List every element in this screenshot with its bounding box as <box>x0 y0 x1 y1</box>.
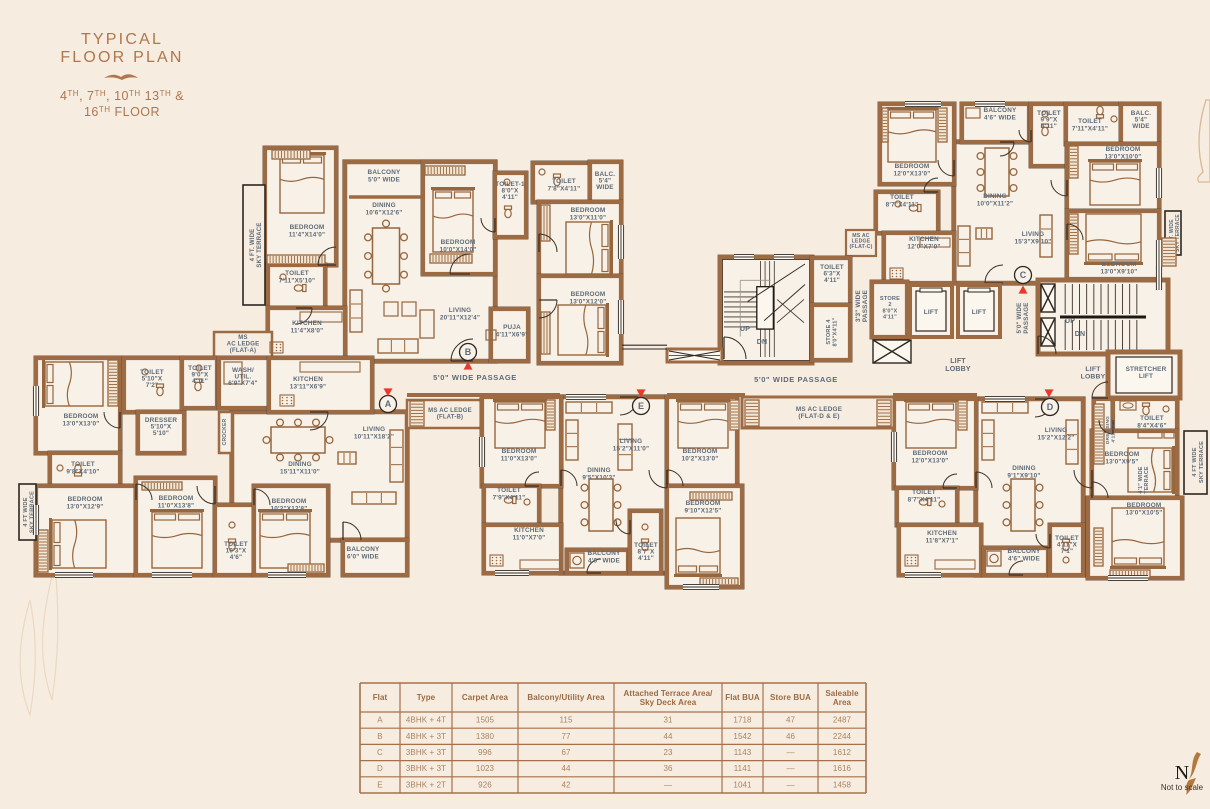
svg-text:31: 31 <box>663 716 673 725</box>
svg-text:CROCKER: CROCKER <box>222 418 228 445</box>
svg-text:E: E <box>638 401 644 411</box>
svg-text:TOILET7'8"X4'11": TOILET7'8"X4'11" <box>548 178 581 193</box>
svg-text:1141: 1141 <box>734 764 752 773</box>
svg-text:A: A <box>377 716 383 725</box>
svg-text:BEDROOM10'2"X13'0": BEDROOM10'2"X13'0" <box>682 448 719 463</box>
svg-text:BEDROOM13'0"X10'5": BEDROOM13'0"X10'5" <box>1126 502 1163 517</box>
svg-text:BEDROOM13'0"X9'5": BEDROOM13'0"X9'5" <box>1105 451 1140 466</box>
svg-text:5'0" WIDE PASSAGE: 5'0" WIDE PASSAGE <box>754 375 838 384</box>
svg-text:DINING9'5"X10'3": DINING9'5"X10'3" <box>582 467 615 482</box>
svg-text:16TH FLOOR: 16TH FLOOR <box>84 105 160 119</box>
svg-text:D: D <box>377 764 383 773</box>
svg-text:3BHK + 3T: 3BHK + 3T <box>406 748 446 757</box>
svg-text:DN: DN <box>757 339 768 346</box>
svg-text:4'1" WIDETERRACE: 4'1" WIDETERRACE <box>1138 466 1150 494</box>
svg-text:BALCONY6'0" WIDE: BALCONY6'0" WIDE <box>347 546 381 561</box>
svg-text:BEDROOM10'0"X14'0": BEDROOM10'0"X14'0" <box>440 239 477 254</box>
svg-text:BALCONY4'6" WIDE: BALCONY4'6" WIDE <box>984 107 1018 122</box>
svg-text:LIFT: LIFT <box>924 309 939 316</box>
svg-text:Not to scale: Not to scale <box>1161 783 1204 792</box>
svg-text:1023: 1023 <box>476 764 495 773</box>
svg-text:BALCONY5'0" WIDE: BALCONY5'0" WIDE <box>368 169 402 184</box>
svg-text:B: B <box>465 347 472 357</box>
svg-text:BEDROOM13'0"X12'9": BEDROOM13'0"X12'9" <box>67 496 104 511</box>
svg-text:Balcony/Utility Area: Balcony/Utility Area <box>527 693 605 702</box>
svg-text:—: — <box>786 748 794 757</box>
svg-text:Flat BUA: Flat BUA <box>725 693 760 702</box>
svg-text:4 FT. WIDESKY TERRACE: 4 FT. WIDESKY TERRACE <box>250 222 263 267</box>
svg-text:BALCONY4'6" WIDE: BALCONY4'6" WIDE <box>588 550 622 565</box>
svg-text:BEDROOM13'0"X11'0": BEDROOM13'0"X11'0" <box>570 207 607 222</box>
svg-text:77: 77 <box>561 732 571 741</box>
svg-text:TYPICAL: TYPICAL <box>81 31 163 48</box>
svg-text:N: N <box>1175 762 1189 784</box>
svg-text:3BHK + 3T: 3BHK + 3T <box>406 764 446 773</box>
svg-text:926: 926 <box>478 780 492 789</box>
svg-text:1718: 1718 <box>733 716 752 725</box>
svg-text:5'0" WIDE PASSAGE: 5'0" WIDE PASSAGE <box>433 373 517 382</box>
svg-text:996: 996 <box>478 748 492 757</box>
svg-text:Carpet Area: Carpet Area <box>462 693 509 702</box>
svg-text:BEDROOM10'2"X12'8": BEDROOM10'2"X12'8" <box>271 498 308 513</box>
svg-text:C: C <box>377 748 383 757</box>
svg-text:BALCONY4'6" WIDE: BALCONY4'6" WIDE <box>1008 548 1042 563</box>
svg-text:DN: DN <box>1075 331 1086 338</box>
svg-text:3'3" WIDEPASSAGE: 3'3" WIDEPASSAGE <box>855 289 869 322</box>
svg-text:—: — <box>786 764 794 773</box>
svg-text:TOILET8'7"X4'11": TOILET8'7"X4'11" <box>886 194 919 209</box>
svg-text:Type: Type <box>417 693 436 702</box>
svg-text:B: B <box>377 732 382 741</box>
svg-text:KITCHEN11'8"X7'1": KITCHEN11'8"X7'1" <box>926 530 959 545</box>
svg-text:FLOOR PLAN: FLOOR PLAN <box>60 49 183 66</box>
svg-text:BEDROOM13'0"X13'0": BEDROOM13'0"X13'0" <box>63 413 100 428</box>
svg-text:LIFT: LIFT <box>972 309 987 316</box>
svg-text:5'0" WIDEPASSAGE: 5'0" WIDEPASSAGE <box>1016 302 1030 333</box>
svg-text:KITCHEN11'4"X8'0": KITCHEN11'4"X8'0" <box>291 320 324 335</box>
svg-text:BEDROOM13'0"X10'0": BEDROOM13'0"X10'0" <box>1105 146 1142 161</box>
svg-text:UP: UP <box>1065 318 1075 325</box>
svg-text:1041: 1041 <box>733 780 752 789</box>
svg-text:BEDROOM12'0"X13'0": BEDROOM12'0"X13'0" <box>894 163 931 178</box>
svg-text:BEDROOM12'0"X13'0": BEDROOM12'0"X13'0" <box>912 450 949 465</box>
svg-text:3BHK + 2T: 3BHK + 2T <box>406 780 446 789</box>
svg-text:67: 67 <box>561 748 571 757</box>
svg-text:E: E <box>377 780 382 789</box>
svg-text:Flat: Flat <box>373 693 388 702</box>
svg-text:1616: 1616 <box>833 764 852 773</box>
svg-text:—: — <box>786 780 794 789</box>
svg-text:1380: 1380 <box>476 732 495 741</box>
svg-text:4BHK + 4T: 4BHK + 4T <box>406 716 446 725</box>
svg-text:4BHK + 3T: 4BHK + 3T <box>406 732 446 741</box>
svg-text:UP: UP <box>740 326 750 333</box>
svg-text:DRES SING4'11"X4'2": DRES SING4'11"X4'2" <box>1105 416 1116 444</box>
svg-text:1542: 1542 <box>733 732 752 741</box>
svg-text:KITCHEN11'0"X7'0": KITCHEN11'0"X7'0" <box>513 527 546 542</box>
svg-text:46: 46 <box>786 732 796 741</box>
svg-text:BEDROOM13'0"X9'10": BEDROOM13'0"X9'10" <box>1101 261 1138 276</box>
svg-text:BEDROOM9'10"X12'5": BEDROOM9'10"X12'5" <box>685 500 722 515</box>
svg-text:TOILET8'7"X4'11": TOILET8'7"X4'11" <box>908 489 941 504</box>
svg-text:BEDROOM13'0"X12'0": BEDROOM13'0"X12'0" <box>570 291 607 306</box>
svg-text:KITCHEN13'11"X6'9": KITCHEN13'11"X6'9" <box>290 376 327 391</box>
svg-text:DINING9'1"X9'10": DINING9'1"X9'10" <box>1007 465 1040 480</box>
svg-text:TOILET7'9"X4'11": TOILET7'9"X4'11" <box>493 487 526 502</box>
svg-text:2487: 2487 <box>833 716 852 725</box>
svg-text:42: 42 <box>561 780 571 789</box>
svg-text:BEDROOM11'0"X13'0": BEDROOM11'0"X13'0" <box>501 448 538 463</box>
svg-text:23: 23 <box>663 748 673 757</box>
svg-text:44: 44 <box>663 732 673 741</box>
svg-text:1143: 1143 <box>734 748 752 757</box>
svg-text:MS ACLEDGE(FLAT-C): MS ACLEDGE(FLAT-C) <box>849 233 872 250</box>
svg-text:C: C <box>1020 270 1027 280</box>
svg-text:BEDROOM11'0"X13'8": BEDROOM11'0"X13'8" <box>158 495 195 510</box>
svg-text:47: 47 <box>786 716 796 725</box>
svg-text:44: 44 <box>561 764 571 773</box>
svg-text:D: D <box>1047 402 1054 412</box>
svg-text:BEDROOM11'4"X14'0": BEDROOM11'4"X14'0" <box>289 224 326 239</box>
svg-text:2244: 2244 <box>833 732 852 741</box>
svg-text:—: — <box>664 780 672 789</box>
svg-text:TOILET9'8"X4'10": TOILET9'8"X4'10" <box>66 461 99 476</box>
svg-text:Store BUA: Store BUA <box>770 693 811 702</box>
svg-text:KITCHEN12'0"X7'0": KITCHEN12'0"X7'0" <box>907 236 940 251</box>
svg-text:1458: 1458 <box>833 780 852 789</box>
svg-text:115: 115 <box>559 716 573 725</box>
svg-text:MS AC LEDGE(FLAT-D & E): MS AC LEDGE(FLAT-D & E) <box>796 406 843 420</box>
svg-text:STORE 48'0"X4'11": STORE 48'0"X4'11" <box>826 317 838 346</box>
svg-text:TOILET8'4"X4'6": TOILET8'4"X4'6" <box>1137 415 1166 430</box>
svg-text:1505: 1505 <box>476 716 495 725</box>
svg-text:A: A <box>385 399 392 409</box>
svg-text:36: 36 <box>663 764 673 773</box>
svg-text:1612: 1612 <box>833 748 852 757</box>
